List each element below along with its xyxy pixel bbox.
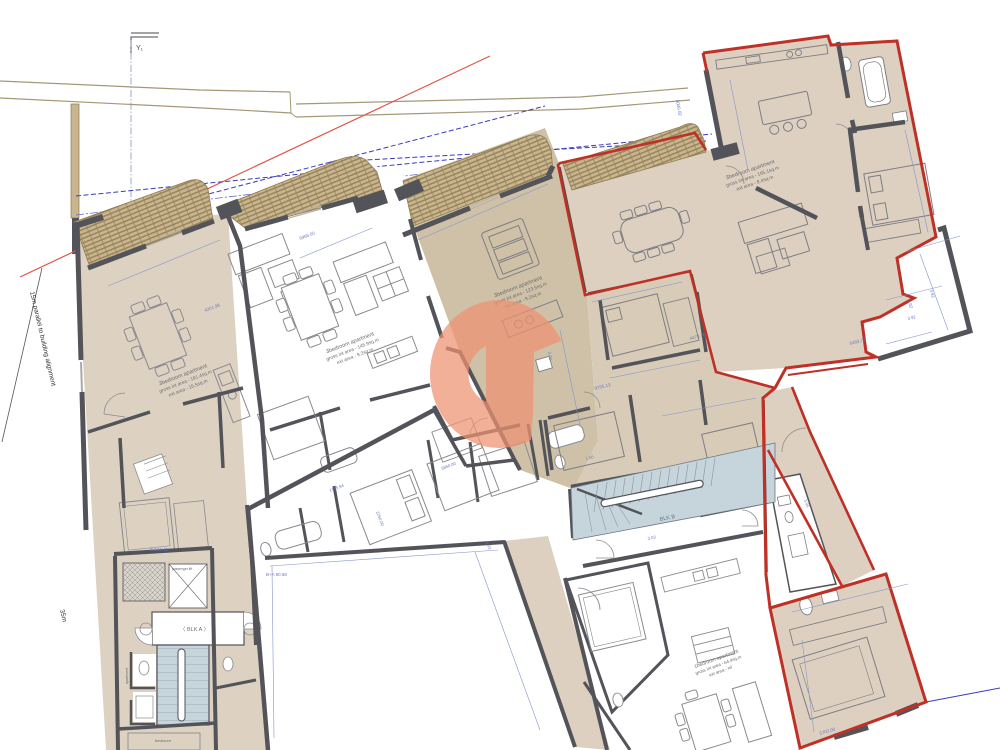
svg-text:Y₁: Y₁ <box>136 45 144 52</box>
svg-text:bedroom: bedroom <box>155 738 171 743</box>
svg-text:B+A 90.68: B+A 90.68 <box>266 572 287 577</box>
svg-text:B 144.41: B 144.41 <box>150 547 169 552</box>
svg-text:〈 BLK A 〉: 〈 BLK A 〉 <box>180 626 209 633</box>
svg-text:apartment: apartment <box>125 668 129 684</box>
svg-text:passenger lift: passenger lift <box>172 567 192 571</box>
